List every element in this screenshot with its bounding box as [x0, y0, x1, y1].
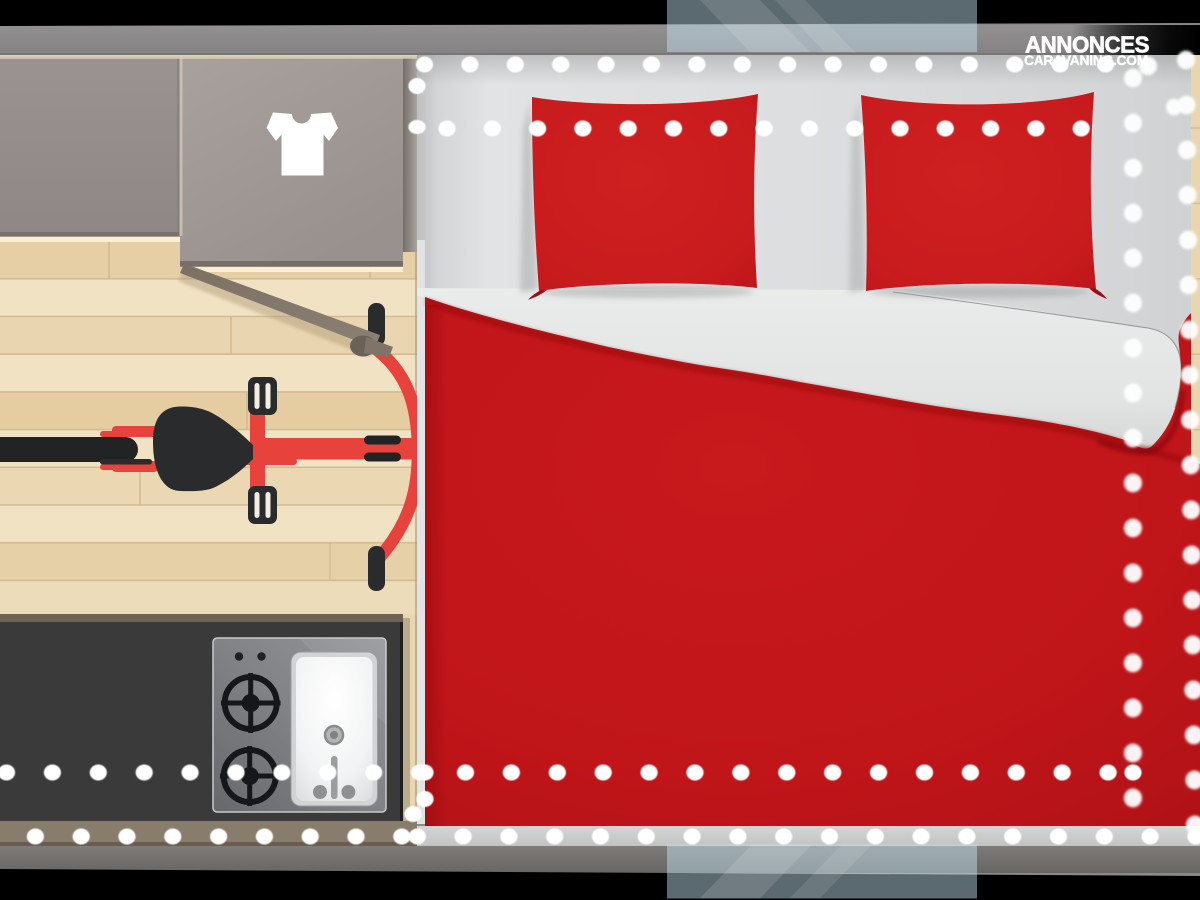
svg-text:CARAVANING.COM: CARAVANING.COM: [1024, 52, 1148, 68]
